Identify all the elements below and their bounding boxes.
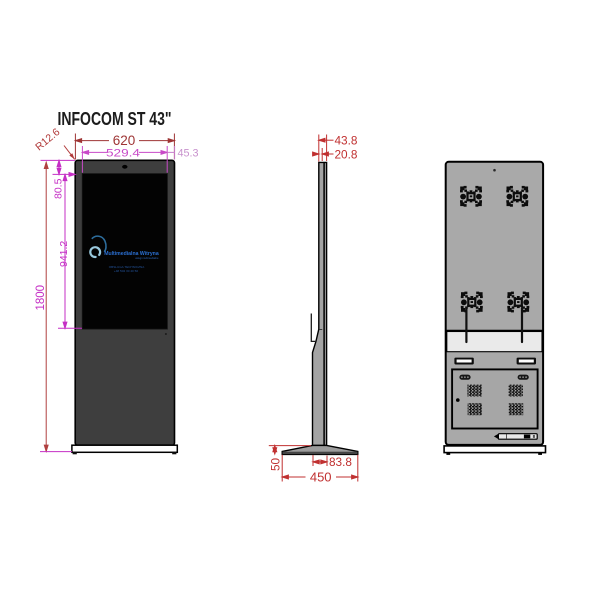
svg-text:43.8: 43.8 [335, 134, 358, 148]
svg-text:Multimedialna Witryna: Multimedialna Witryna [104, 251, 159, 257]
svg-text:45.3: 45.3 [178, 147, 199, 159]
svg-text:83.8: 83.8 [329, 455, 352, 469]
svg-text:941.2: 941.2 [58, 241, 70, 267]
svg-text:450: 450 [310, 469, 332, 484]
svg-text:INFOCOM ST 43": INFOCOM ST 43" [58, 109, 172, 129]
svg-text:1800: 1800 [35, 285, 47, 311]
svg-text:529.4: 529.4 [106, 147, 140, 159]
svg-text:50: 50 [269, 457, 283, 471]
svg-text:80.5: 80.5 [52, 178, 64, 199]
svg-text:20.8: 20.8 [335, 148, 358, 162]
svg-text:uslugi multimedialne: uslugi multimedialne [135, 256, 159, 260]
svg-text:R12.6: R12.6 [33, 126, 62, 153]
svg-text:620: 620 [113, 133, 136, 148]
svg-text:+48 502 30 40 50: +48 502 30 40 50 [114, 269, 138, 273]
